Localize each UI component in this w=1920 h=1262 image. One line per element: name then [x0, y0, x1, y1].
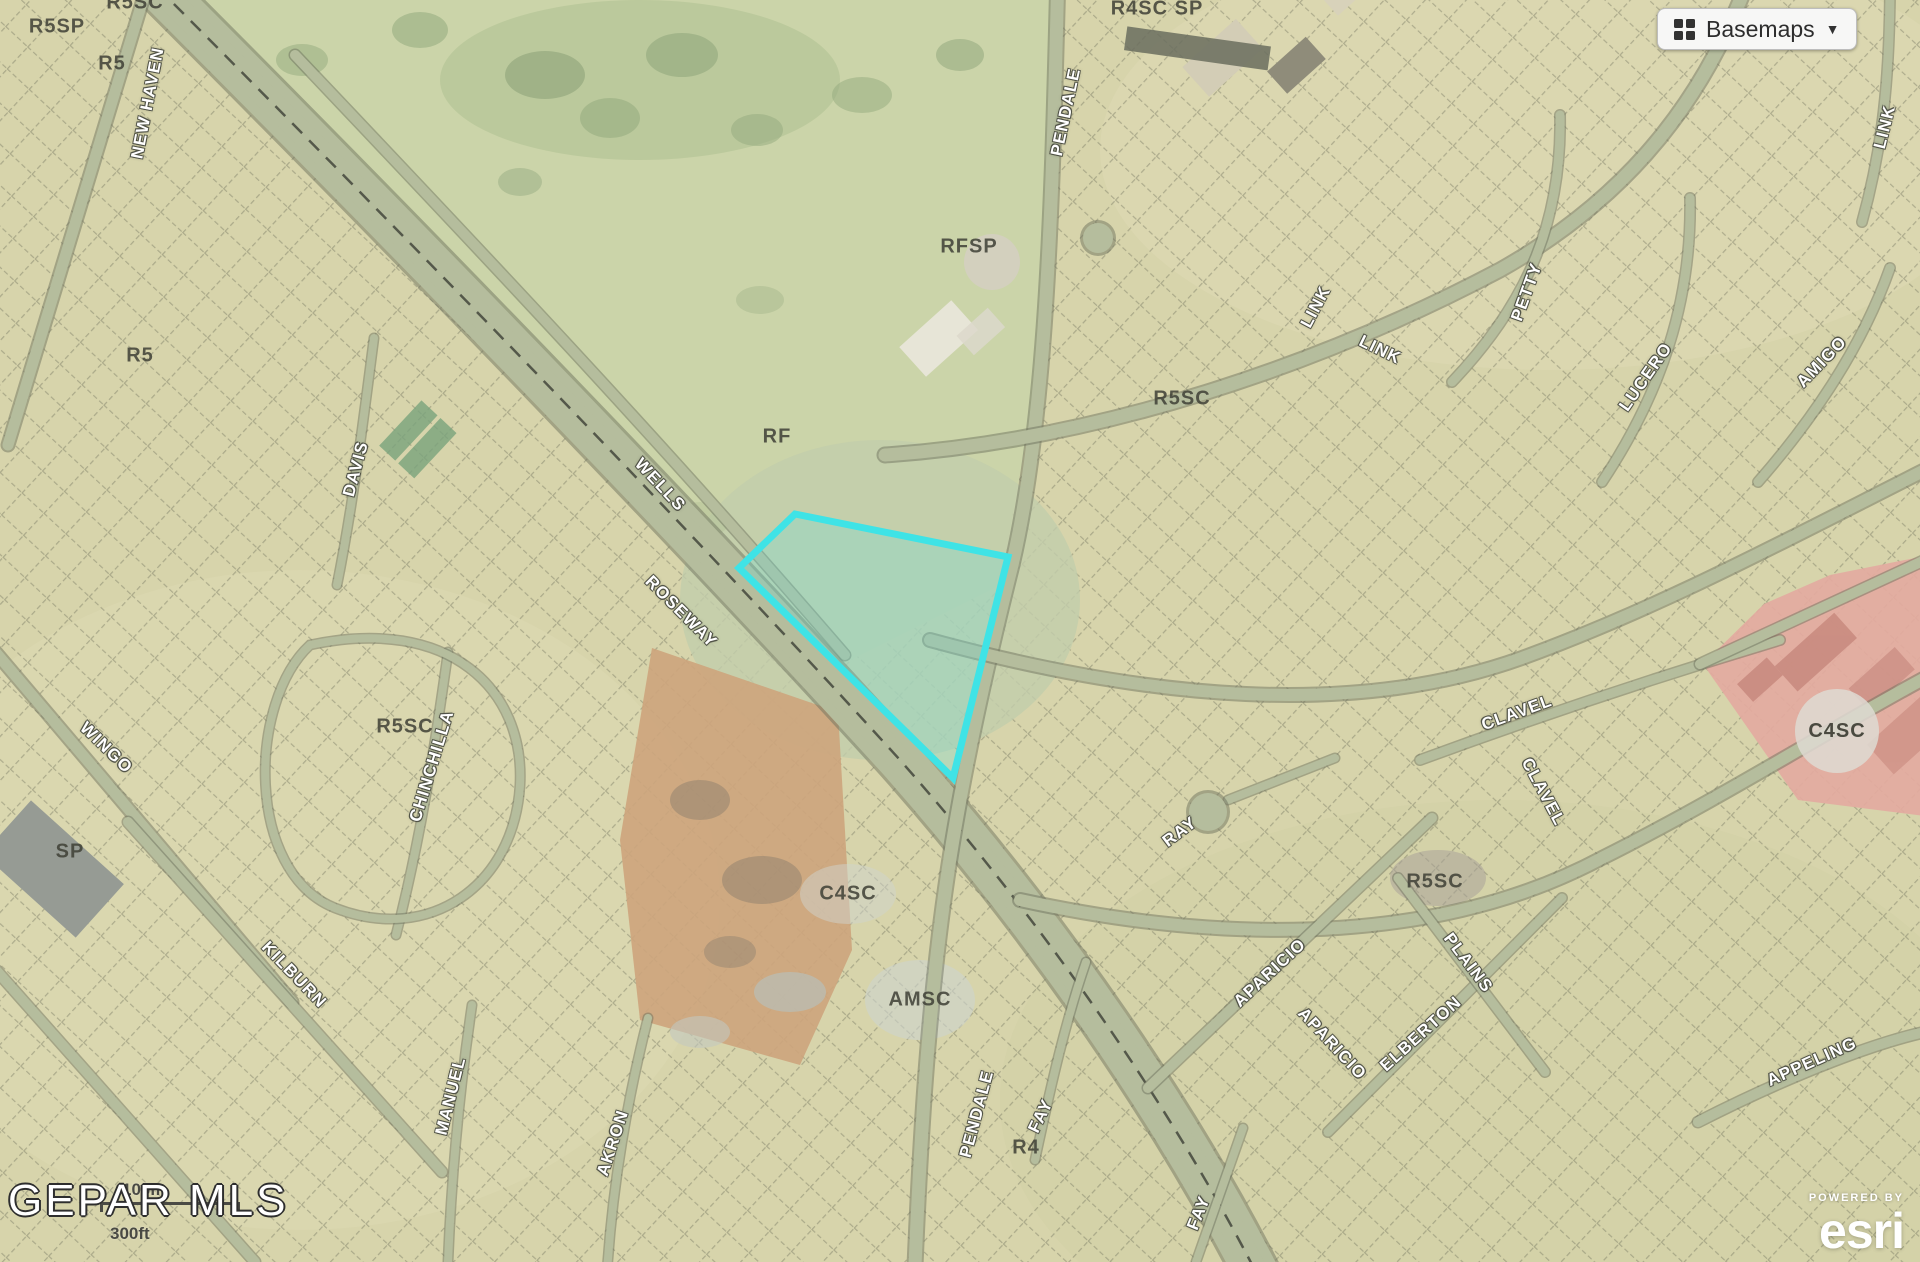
basemaps-label: Basemaps — [1706, 16, 1815, 43]
esri-attribution: POWERED BY esri — [1809, 1193, 1904, 1256]
chevron-down-icon: ▼ — [1826, 22, 1840, 36]
scale-imperial-label: 300ft — [110, 1224, 240, 1244]
map-canvas[interactable] — [0, 0, 1920, 1262]
basemaps-grid-icon — [1674, 19, 1695, 40]
basemaps-button[interactable]: Basemaps ▼ — [1657, 8, 1857, 50]
esri-logo: esri — [1809, 1206, 1904, 1256]
map-app: R5SCR5SPR4SC SPR5RFSPR5R5SCRFR5SCSPR5SCC… — [0, 0, 1920, 1262]
watermark: GEPAR MLS — [8, 1176, 288, 1226]
